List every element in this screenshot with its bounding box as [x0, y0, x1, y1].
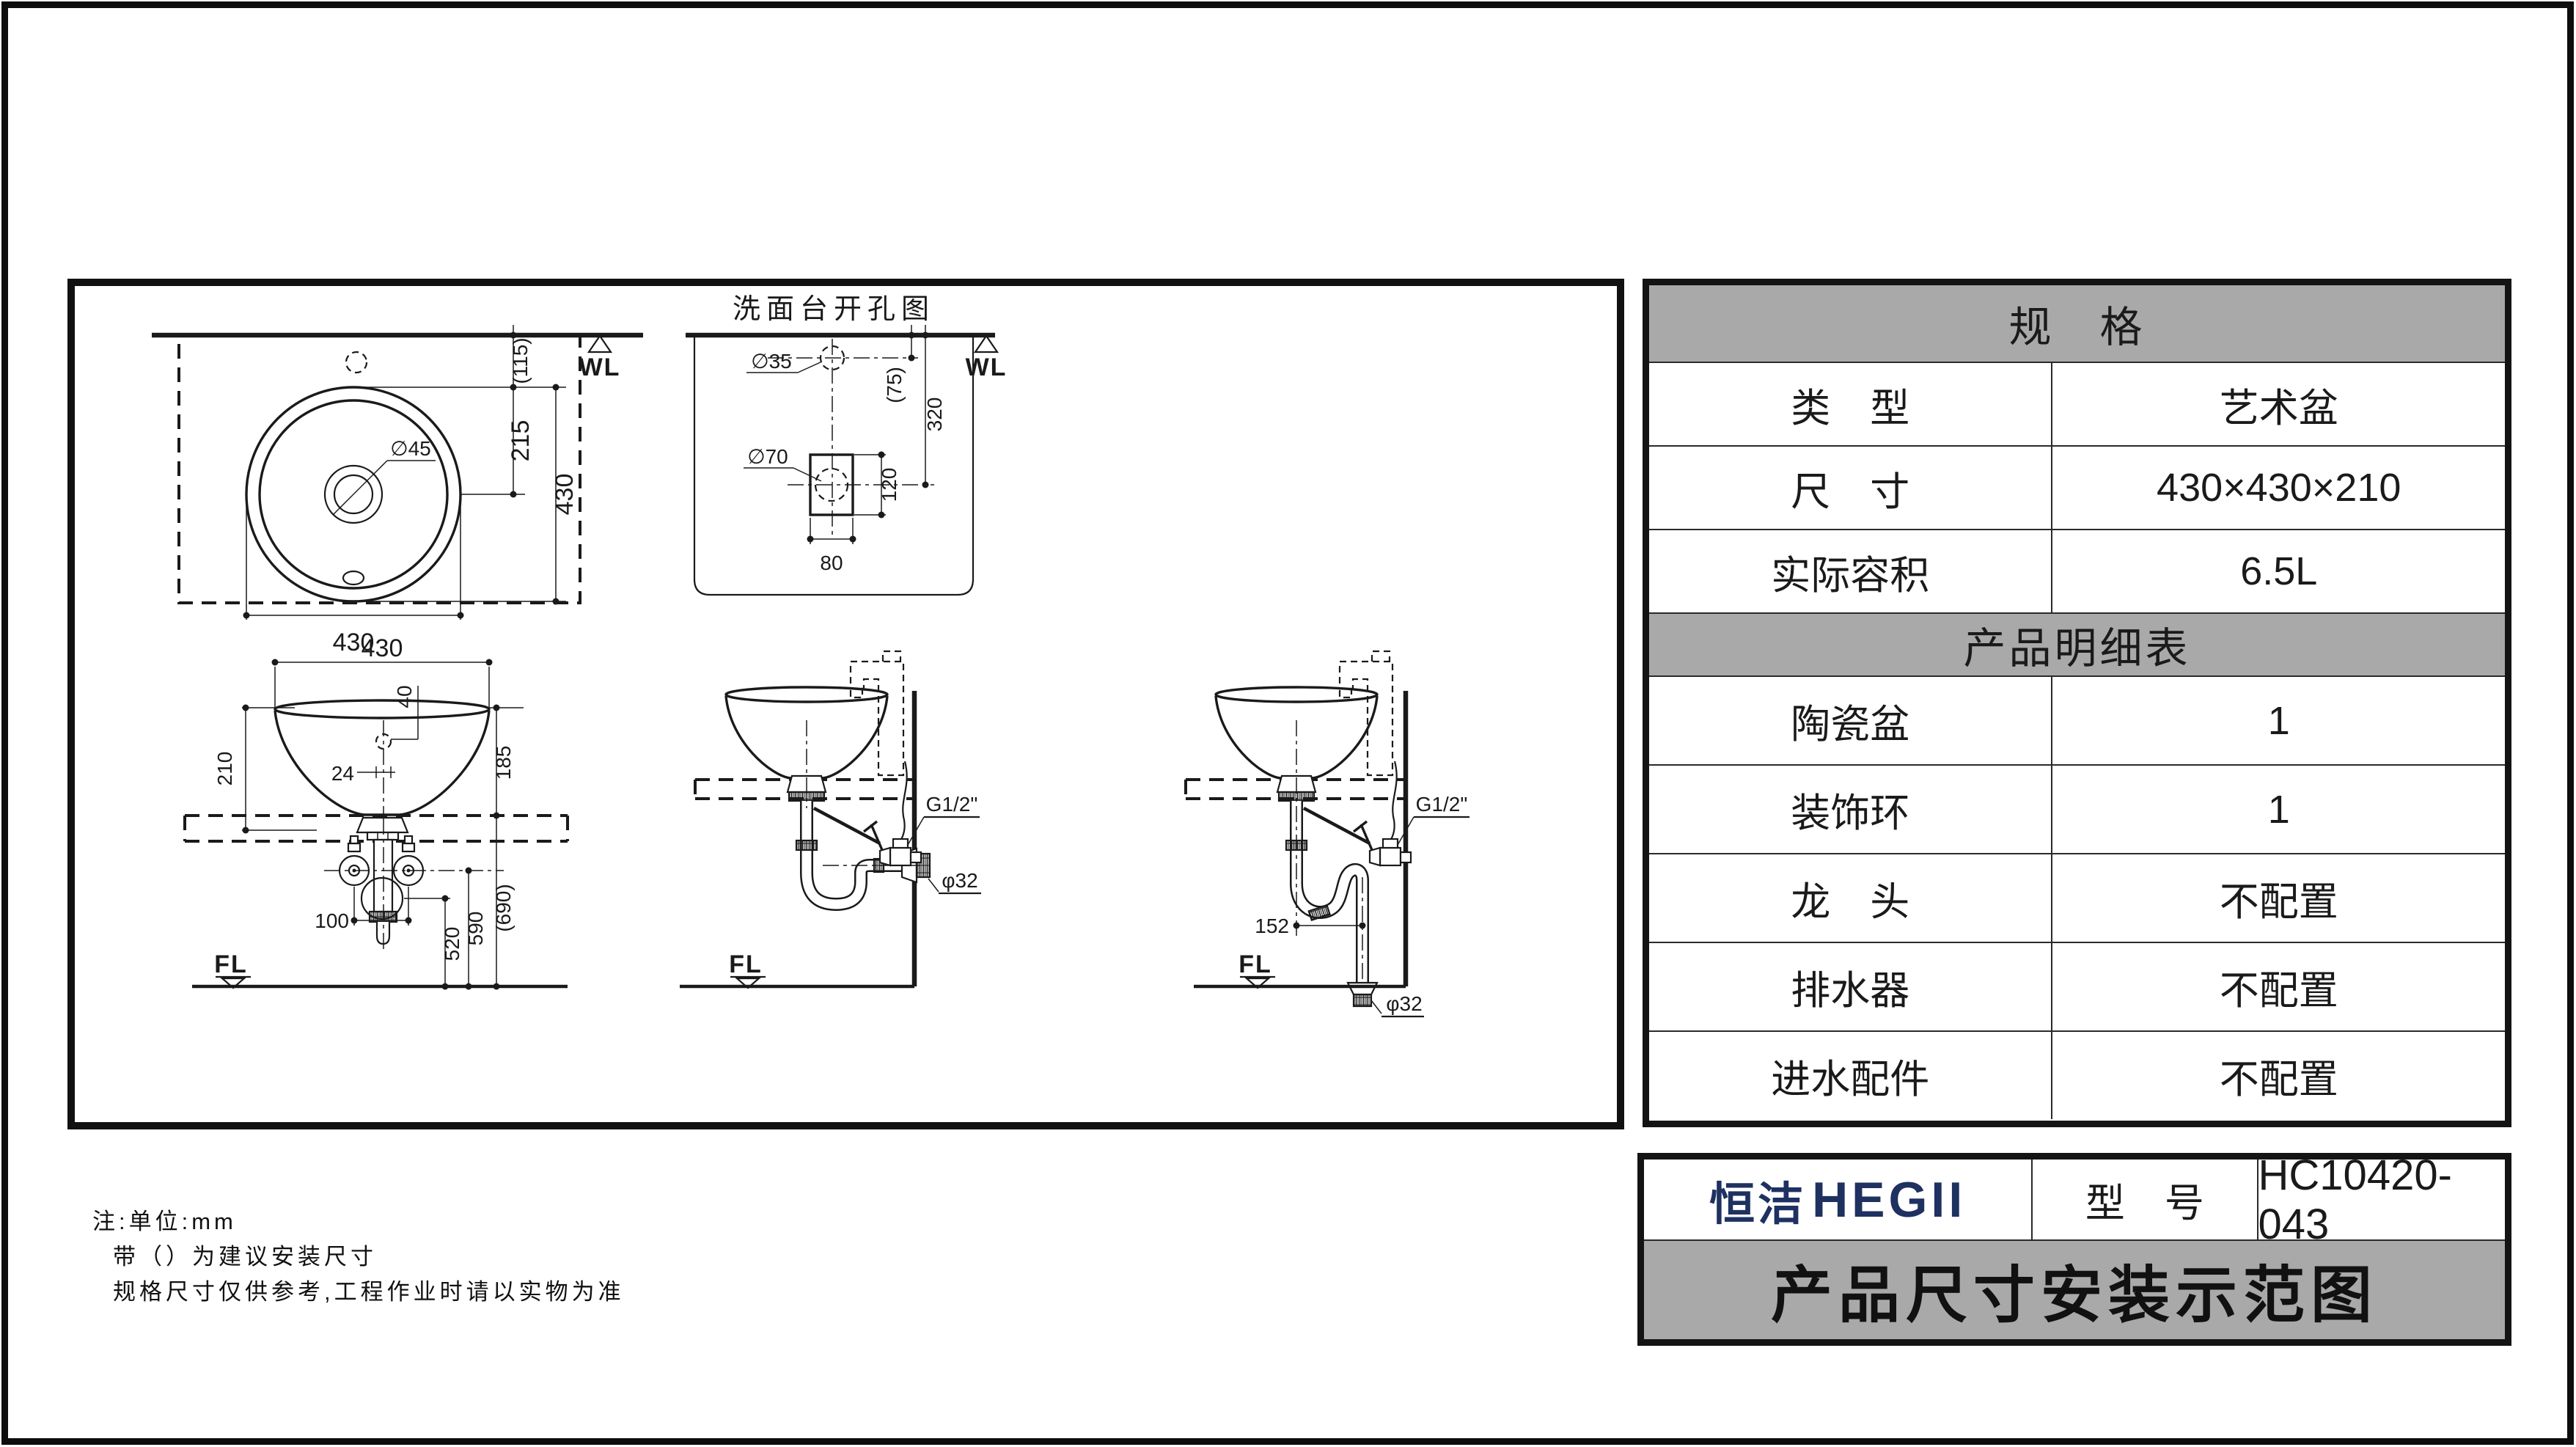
dim-75: (75): [883, 367, 906, 403]
g12-leader: [1398, 817, 1469, 845]
basin-bowl: [275, 711, 489, 815]
table-row: 陶瓷盆 1: [1649, 677, 2505, 766]
dim-430: 430: [362, 634, 403, 662]
s-trap-pipe: [1286, 801, 1362, 994]
front-view-drawing: 430 40 24: [185, 634, 568, 990]
drawing-panel: WL ∅45: [67, 279, 1624, 1129]
detail-header: 产品明细表: [1649, 614, 2505, 677]
row-label: 装饰环: [1649, 766, 2052, 853]
cutout-view-drawing: 洗面台开孔图 WL ∅35 ∅: [686, 294, 1007, 595]
title-block-top-row: 恒洁 HEGII 型 号 HC10420-043: [1644, 1160, 2505, 1241]
floor-level-symbol: FL: [214, 950, 251, 988]
wl-triangle-icon: [589, 336, 611, 352]
row-value: 430×430×210: [2052, 447, 2505, 529]
drain-hex-nut: [367, 832, 398, 840]
row-label: 类 型: [1649, 363, 2052, 445]
dim-80: 80: [820, 552, 843, 574]
phi32-label: φ32: [1386, 992, 1422, 1015]
row-label: 进水配件: [1649, 1032, 2052, 1119]
spec-table: 规 格 类 型 艺术盆 尺 寸 430×430×210 实际容积 6.5L 产品…: [1643, 279, 2511, 1127]
table-row: 装饰环 1: [1649, 766, 2505, 854]
flex-hose: [1304, 808, 1374, 855]
floor-drain-view-drawing: G1/2" 152 φ32 FL: [1186, 651, 1469, 1016]
table-row: 龙 头 不配置: [1649, 854, 2505, 943]
flex-hose: [814, 808, 884, 855]
row-value: 不配置: [2052, 854, 2505, 942]
brand-logo: 恒洁 HEGII: [1644, 1160, 2033, 1239]
dim-40: 40: [393, 685, 416, 708]
cutout-title: 洗面台开孔图: [733, 294, 935, 325]
g12-leader: [908, 817, 980, 845]
table-row: 进水配件 不配置: [1649, 1032, 2505, 1119]
dim-152: 152: [1255, 915, 1289, 937]
spec-header: 规 格: [1649, 285, 2505, 363]
notes: 注:单位:mm 带（）为建议安装尺寸 规格尺寸仅供参考,工程作业时请以实物为准: [92, 1204, 625, 1310]
dim-520: 520: [441, 927, 463, 961]
basin-bowl: [1216, 696, 1377, 778]
phi32-label: φ32: [942, 869, 977, 892]
title-block: 恒洁 HEGII 型 号 HC10420-043 产品尺寸安装示范图: [1637, 1153, 2511, 1346]
dim-690: (690): [492, 884, 515, 931]
wl-triangle-icon: [975, 336, 997, 352]
floor-level-symbol: FL: [1239, 950, 1275, 988]
supply-hose-wall: [896, 761, 907, 846]
dim-210: 210: [213, 752, 236, 786]
overflow-hole: [343, 571, 364, 585]
detail-section: 陶瓷盆 1 装饰环 1 龙 头 不配置 排水器 不配置 进水配件 不配置: [1649, 677, 2505, 1119]
basin-rim: [275, 700, 489, 718]
row-value: 1: [2052, 677, 2505, 764]
row-label: 龙 头: [1649, 854, 2052, 942]
basin-rim: [1216, 687, 1377, 702]
dim-430-vertical: 430: [551, 474, 579, 516]
drain-cone: [357, 818, 408, 832]
hole35-label: ∅35: [751, 350, 792, 373]
datasheet-page: WL ∅45: [0, 0, 2576, 1447]
brand-logo-en: HEGII: [1812, 1171, 1966, 1228]
row-value: 1: [2052, 766, 2505, 853]
fl-label: FL: [729, 950, 763, 978]
table-row: 实际容积 6.5L: [1649, 530, 2505, 614]
row-value: 不配置: [2052, 943, 2505, 1030]
technical-drawings: WL ∅45: [75, 286, 1617, 1122]
drain-hole: [325, 461, 436, 523]
fl-label: FL: [214, 950, 248, 978]
dim-24-lines: [357, 766, 395, 778]
wall-drain-view-drawing: G1/2" φ32 FL: [680, 651, 981, 988]
row-label: 实际容积: [1649, 530, 2052, 612]
dim-185: 185: [492, 746, 515, 780]
dim-590: 590: [464, 912, 487, 946]
row-label: 尺 寸: [1649, 447, 2052, 529]
top-view-drawing: WL ∅45: [152, 325, 643, 656]
table-row: 类 型 艺术盆: [1649, 363, 2505, 447]
row-value: 不配置: [2052, 1032, 2505, 1119]
dim-152-lines: [1293, 923, 1366, 929]
model-number: HC10420-043: [2258, 1160, 2505, 1239]
fl-label: FL: [1239, 950, 1272, 978]
note-line: 注:单位:mm: [92, 1204, 625, 1239]
note-line: 带（）为建议安装尺寸: [92, 1239, 625, 1275]
dim-24: 24: [331, 762, 354, 785]
supply-hose-wall: [1386, 761, 1397, 846]
g12-label: G1/2": [1416, 793, 1468, 816]
note-line: 规格尺寸仅供参考,工程作业时请以实物为准: [92, 1275, 625, 1310]
model-label: 型 号: [2033, 1160, 2258, 1239]
row-value: 6.5L: [2052, 530, 2505, 612]
drain-dim-label: ∅45: [390, 437, 431, 460]
basin-bowl: [726, 696, 887, 778]
row-value: 艺术盆: [2052, 363, 2505, 445]
row-label: 陶瓷盆: [1649, 677, 2052, 764]
dim-320: 320: [923, 398, 946, 432]
dim-120: 120: [878, 468, 900, 502]
dim-215: 215: [507, 420, 535, 462]
spec-section: 类 型 艺术盆 尺 寸 430×430×210 实际容积 6.5L: [1649, 363, 2505, 614]
faucet-hole: [346, 352, 367, 373]
wl-label: WL: [966, 353, 1008, 381]
document-title: 产品尺寸安装示范图: [1644, 1241, 2505, 1339]
table-row: 尺 寸 430×430×210: [1649, 447, 2505, 530]
dim-100: 100: [315, 909, 349, 932]
g12-label: G1/2": [926, 793, 978, 816]
row-label: 排水器: [1649, 943, 2052, 1030]
dim-115: (115): [509, 337, 532, 384]
floor-level-symbol: FL: [729, 950, 766, 988]
table-row: 排水器 不配置: [1649, 943, 2505, 1032]
brand-logo-cn: 恒洁: [1709, 1167, 1806, 1233]
hole70-label: ∅70: [747, 445, 788, 468]
wl-label: WL: [579, 353, 621, 381]
